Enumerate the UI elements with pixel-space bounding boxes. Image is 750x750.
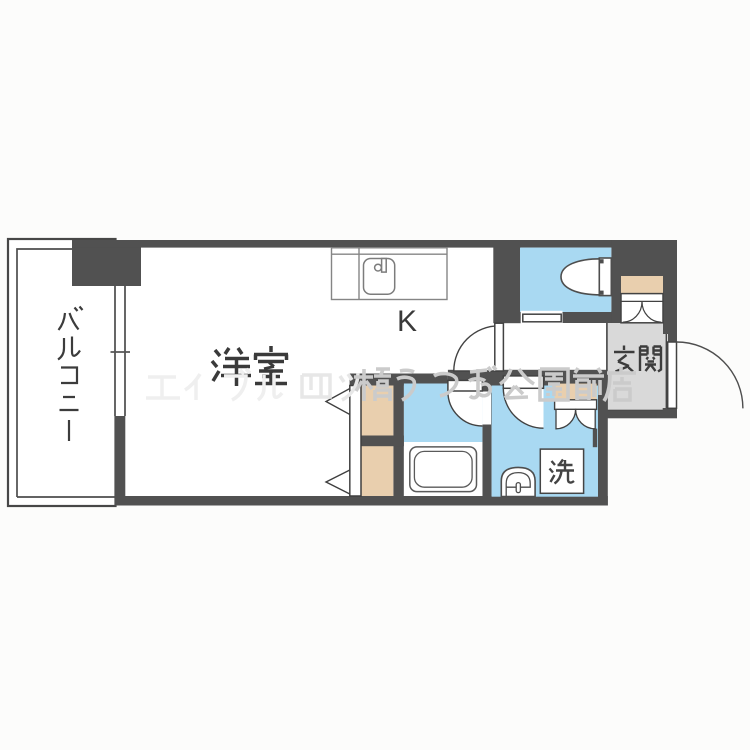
svg-text:K: K [397,305,417,338]
